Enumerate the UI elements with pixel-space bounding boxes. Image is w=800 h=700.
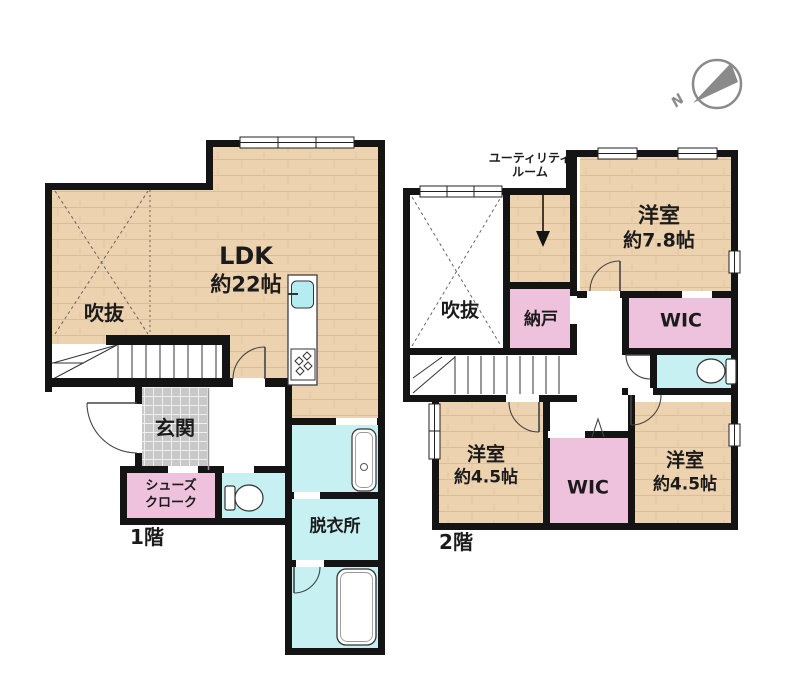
wic-upper-label: WIC xyxy=(660,312,702,331)
toilet-1f-icon xyxy=(225,485,263,511)
bedroom-main-size-label: 約7.8帖 xyxy=(623,232,695,251)
vanity-icon xyxy=(352,429,376,491)
floor2-label: 2階 xyxy=(439,532,473,552)
floorplan-canvas: LDK 約22帖 吹抜 玄関 シューズ クローク 脱衣所 1階 ユーティリティ … xyxy=(0,0,800,700)
ldk-size-label: 約22帖 xyxy=(210,275,281,296)
void-2f-label: 吹抜 xyxy=(441,302,479,321)
utility-room-label-2: ルーム xyxy=(512,166,548,178)
stairs-2f xyxy=(413,356,559,394)
void-1f-label: 吹抜 xyxy=(84,303,124,323)
wic-lower-label: WIC xyxy=(567,479,609,498)
bedroom-left-size-label: 約4.5帖 xyxy=(454,470,518,487)
shoe-closet-label-1: シューズ xyxy=(145,480,196,493)
kitchen-stove xyxy=(291,349,315,380)
shoe-closet-label-2: クローク xyxy=(145,497,197,510)
window-ldk-north xyxy=(240,137,354,148)
bedroom-right-size-label: 約4.5帖 xyxy=(653,477,717,494)
ldk-label: LDK xyxy=(219,244,273,268)
entrance-label: 玄関 xyxy=(155,418,195,438)
storage-label: 納戸 xyxy=(524,312,558,329)
toilet-2f-icon xyxy=(697,359,736,384)
dressing-room-label: 脱衣所 xyxy=(310,519,361,536)
void-2f-marks xyxy=(412,197,501,346)
floor1-label: 1階 xyxy=(130,527,164,547)
utility-room-label-1: ユーティリティ xyxy=(489,152,572,164)
kitchen-counter xyxy=(288,275,317,385)
bedroom-main-label: 洋室 xyxy=(638,206,680,227)
entrance-door xyxy=(87,403,137,453)
bedroom-left-label: 洋室 xyxy=(467,446,505,465)
floor-plan-1f xyxy=(45,137,385,655)
bathtub-icon xyxy=(337,569,376,645)
bedroom-right-label: 洋室 xyxy=(666,452,704,471)
toilet-2f-door xyxy=(626,355,650,379)
compass-icon xyxy=(693,60,741,108)
